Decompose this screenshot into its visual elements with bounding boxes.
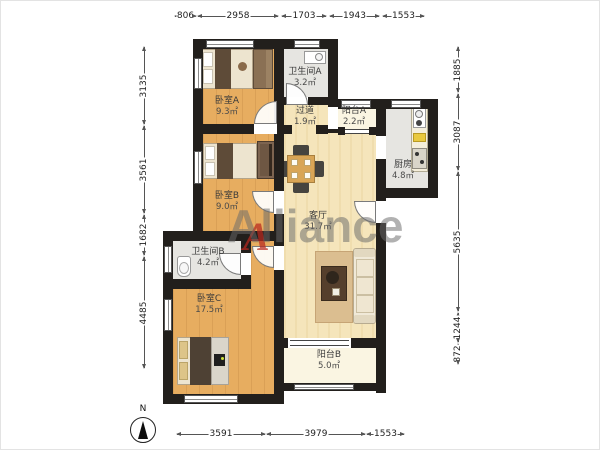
sliding-door-balcony-b: [290, 340, 349, 346]
kitchen-item: [413, 133, 426, 142]
dim-top-2: 1703: [281, 9, 327, 23]
bed-c-pillow: [179, 341, 188, 359]
wall-stub-balcony-a: [369, 127, 376, 135]
sofa-cushion: [356, 277, 374, 295]
window-bedroom-a-left: [194, 58, 202, 89]
dim-left-3: 4485: [137, 256, 151, 369]
window-bathroom-a-top: [294, 40, 320, 48]
bed-b-pillow: [205, 162, 215, 176]
door-gap-bedroom-a: [254, 124, 277, 134]
wall-stub-balcony-a: [338, 127, 345, 135]
dim-right-1: 3087: [451, 93, 465, 171]
dim-top-3: 1943: [329, 9, 380, 23]
coffee-table-item: [332, 288, 340, 296]
room-area: 3.2㎡: [294, 78, 316, 88]
sofa-armrest: [354, 315, 375, 323]
room-name: 过道: [296, 106, 314, 117]
room-area: 17.5㎡: [195, 305, 222, 315]
dining-plate: [304, 172, 311, 179]
kitchen-door-gap: [376, 136, 386, 159]
room-name: 卫生间A: [288, 67, 321, 78]
window-bedroom-b-left: [194, 151, 202, 184]
room-label-balcony-b: 阳台B 5.0㎡: [301, 350, 357, 371]
room-label-hallway: 过道 1.9㎡: [282, 106, 328, 127]
room-label-bathroom-a: 卫生间A 3.2㎡: [280, 67, 330, 88]
kitchen-sink-bowl: [415, 110, 423, 118]
room-name: 卫生间B: [191, 247, 224, 258]
room-label-bedroom-c: 卧室C 17.5㎡: [181, 294, 237, 315]
window-bedroom-c-left: [164, 299, 172, 331]
tv-c: [214, 354, 225, 366]
dim-right-3: 1244: [451, 312, 465, 343]
dim-left-1: 3561: [137, 125, 151, 214]
room-area: 1.9㎡: [294, 117, 316, 127]
bed-a-decor: [238, 62, 247, 71]
window-bathroom-b-left: [164, 246, 172, 273]
compass: N: [125, 404, 161, 450]
wall-bathroom-b-bottom: [163, 279, 251, 289]
kitchen-faucet: [416, 120, 422, 126]
dim-top-1: 2958: [197, 9, 279, 23]
tv-c-dot: [221, 357, 224, 360]
dining-plate: [291, 172, 298, 179]
room-area: 9.3㎡: [216, 107, 238, 117]
dim-right-4: 872: [451, 343, 465, 365]
watermark: Alliance: [227, 199, 437, 253]
room-label-balcony-a: 阳台A 2.2㎡: [332, 106, 376, 127]
room-area: 5.0㎡: [318, 361, 340, 371]
bathroom-a-basin-bowl: [315, 53, 323, 61]
room-name: 卧室A: [215, 96, 239, 107]
dim-right-2: 5635: [451, 171, 465, 312]
bed-a-pillow: [203, 69, 213, 84]
bed-c-blanket: [190, 337, 211, 385]
room-label-kitchen: 厨房 4.8㎡: [381, 160, 425, 181]
room-name: 阳台A: [342, 106, 366, 117]
room-area: 4.2㎡: [197, 258, 219, 268]
dim-bottom-0: 3591: [176, 427, 266, 441]
bed-a-blanket: [215, 49, 231, 89]
dim-bottom-1: 3979: [266, 427, 366, 441]
dining-plate: [304, 159, 311, 166]
bed-c-pillow: [179, 362, 188, 380]
sliding-door-balcony-a: [345, 129, 369, 134]
window-bedroom-c-bottom: [184, 395, 238, 403]
dim-right-0: 1885: [451, 46, 465, 93]
dim-bottom-2: 1553: [366, 427, 405, 441]
dim-left-0: 3135: [137, 46, 151, 125]
sofa-cushion: [356, 259, 374, 277]
room-area: 4.8㎡: [392, 171, 414, 181]
window-balcony-b-bottom: [294, 384, 354, 390]
dim-left-2: 1682: [137, 214, 151, 256]
room-label-bedroom-a: 卧室A 9.3㎡: [198, 96, 256, 117]
bed-b-pillow: [205, 146, 215, 160]
bed-a-pillow: [203, 52, 213, 67]
floor-plan: 卧室A 9.3㎡ 卫生间A 3.2㎡ 过道 1.9㎡ 阳台A 2.2㎡ 厨房 4…: [0, 0, 600, 450]
coffee-table-plant: [326, 271, 339, 284]
dining-chair: [293, 182, 309, 193]
wardrobe-a: [253, 49, 273, 89]
dining-plate: [291, 159, 298, 166]
compass-north-label: N: [125, 404, 161, 414]
compass-needle-icon: [138, 421, 148, 439]
room-name: 卧室C: [197, 294, 221, 305]
wardrobe-b: [257, 141, 275, 179]
window-kitchen-top: [391, 100, 421, 108]
dim-top-0: 806: [174, 9, 197, 23]
wall-kitchen-right: [428, 99, 438, 198]
bed-b-blanket: [217, 143, 233, 179]
room-name: 阳台B: [317, 350, 341, 361]
room-name: 厨房: [394, 160, 412, 171]
dim-top-4: 1553: [382, 9, 425, 23]
room-area: 2.2㎡: [343, 117, 365, 127]
sofa-cushion: [356, 295, 374, 313]
kitchen-burner: [415, 152, 419, 156]
window-bedroom-a-top: [206, 40, 254, 48]
